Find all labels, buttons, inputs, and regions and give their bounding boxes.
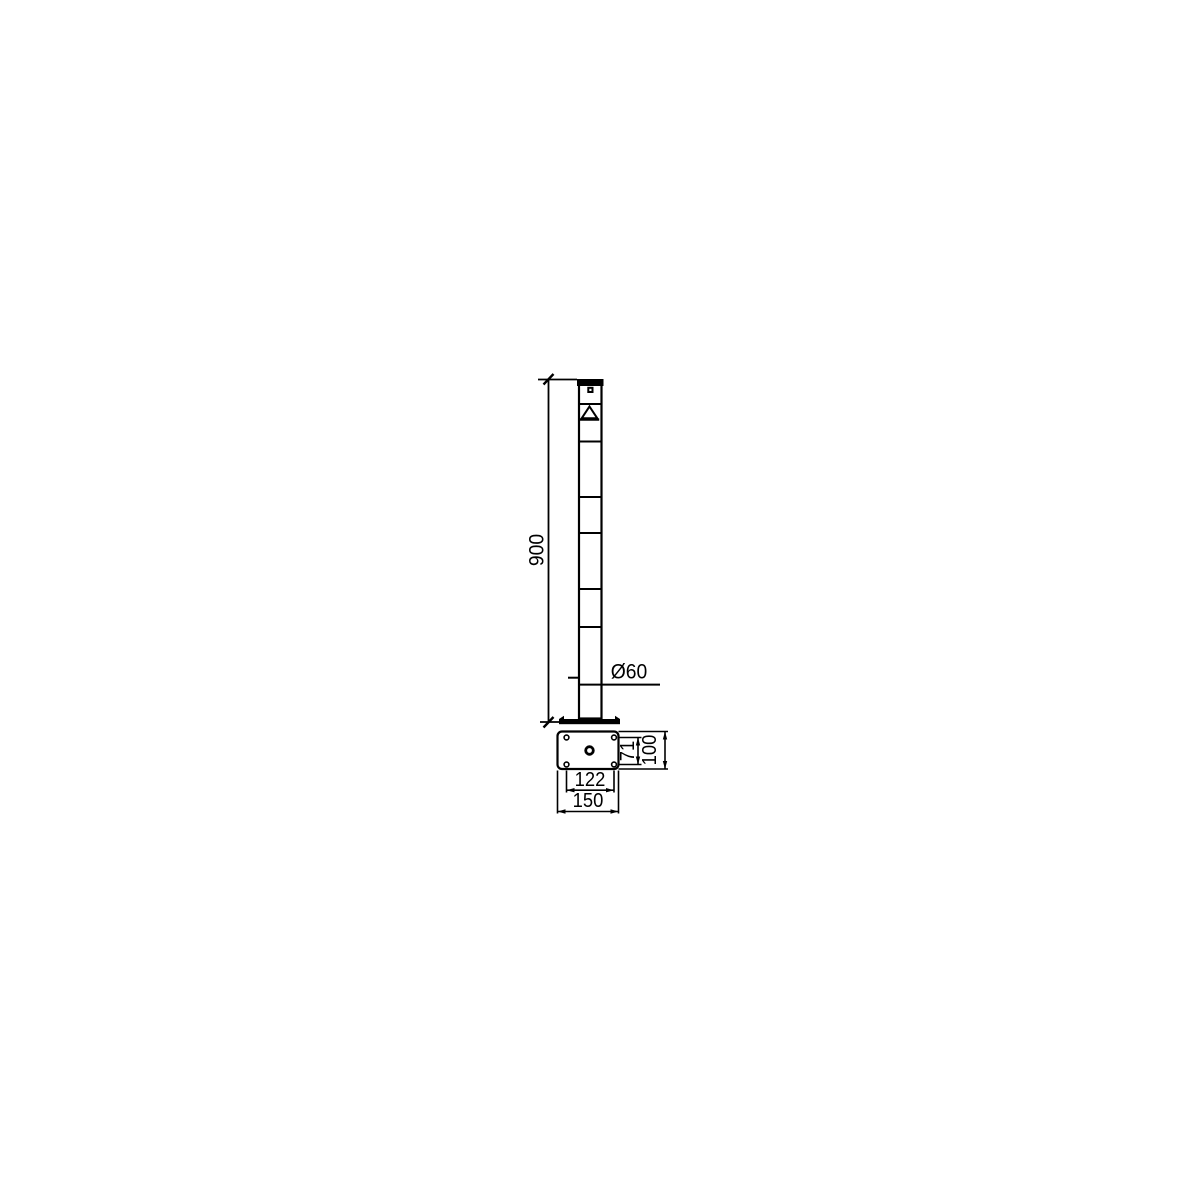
arrowhead-right — [611, 809, 619, 813]
bollard-dimension-drawing — [0, 0, 1200, 1200]
bolt-hole — [612, 762, 617, 767]
center-hole — [586, 747, 594, 755]
post-outline — [579, 381, 602, 719]
post-cap — [577, 379, 604, 386]
bolt-hole — [564, 735, 569, 740]
arrowhead-right — [606, 788, 614, 792]
dim-122-label: 122 — [575, 770, 606, 790]
base-flange-bar — [559, 719, 620, 724]
dim-150-label: 150 — [573, 791, 604, 811]
drawing-canvas: 900 Ø60 71 100 122 150 — [0, 0, 1200, 1200]
arrowhead-left — [558, 809, 566, 813]
dim-diameter-label: Ø60 — [611, 662, 648, 683]
flange-fillet-right — [615, 716, 620, 719]
dim-100-label: 100 — [640, 735, 660, 766]
bolt-hole — [564, 762, 569, 767]
top-view — [558, 732, 619, 770]
bolt-hole — [612, 735, 617, 740]
arrowhead-down — [663, 761, 667, 769]
arrowhead-up — [663, 732, 667, 740]
dim-900-label: 900 — [527, 534, 548, 566]
flange-fillet-left — [559, 716, 564, 719]
dim-71-label: 71 — [618, 741, 638, 761]
